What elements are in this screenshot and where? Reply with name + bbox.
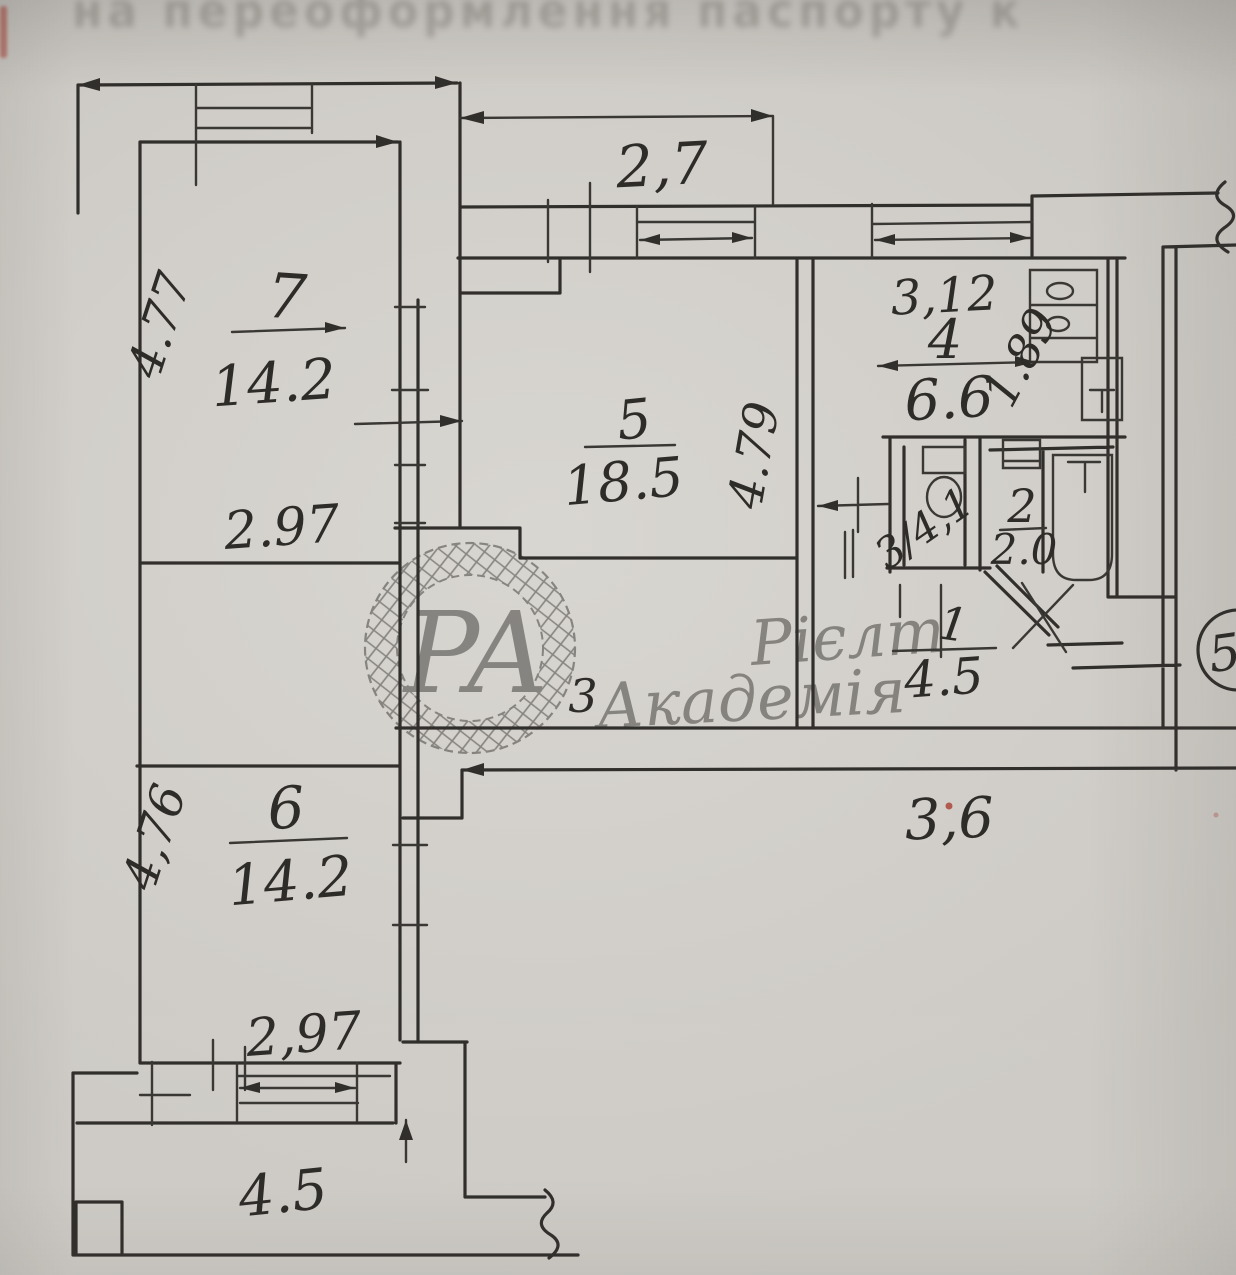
room6-number: 6 xyxy=(266,773,306,843)
corridor-width-label: 3,6 xyxy=(904,785,995,853)
washbasin-outline xyxy=(1003,440,1040,468)
room5-area: 18.5 xyxy=(561,445,686,518)
door-cross-mark xyxy=(1013,583,1073,652)
room5-number: 5 xyxy=(614,386,655,452)
room6-width-dim: 2,97 xyxy=(243,1001,365,1069)
stamp-number: 5 xyxy=(1205,622,1236,684)
door-number-mark: 3 xyxy=(568,669,597,723)
hall-area: 4.5 xyxy=(901,646,985,709)
room5-depth-dim: 4.79 xyxy=(717,398,791,514)
room7-height-dim: 4.77 xyxy=(116,265,203,385)
floor-plan-drawing: РА Рієлт Академія 2,7 xyxy=(0,0,1236,1275)
scanned-floor-plan-page: на переоформлення паспорту к РА Рієлт Ак… xyxy=(0,0,1236,1275)
watermark-title-line2: Академія xyxy=(591,654,908,743)
room7-number: 7 xyxy=(264,259,309,335)
watermark: РА Рієлт Академія xyxy=(365,543,947,753)
bathtub-outline xyxy=(1053,455,1112,580)
kitchen-number: 4 xyxy=(927,308,962,371)
watermark-monogram: РА xyxy=(402,589,543,719)
toilet-outline xyxy=(923,447,965,473)
balcony-width-label: 2,7 xyxy=(613,129,710,202)
loggia-area-label: 4.5 xyxy=(234,1157,330,1231)
hall-number: 1 xyxy=(935,595,972,653)
red-dot-mark xyxy=(946,803,953,810)
wc-area: 2.0 xyxy=(990,525,1058,574)
room7-area: 14.2 xyxy=(209,347,338,421)
room6-height-dim: 4,76 xyxy=(111,778,198,898)
stove-burner-icon xyxy=(1047,283,1073,299)
room6-area: 14.2 xyxy=(225,844,355,920)
red-dot-mark xyxy=(1214,813,1219,818)
room7-width-dim: 2.97 xyxy=(221,494,343,562)
